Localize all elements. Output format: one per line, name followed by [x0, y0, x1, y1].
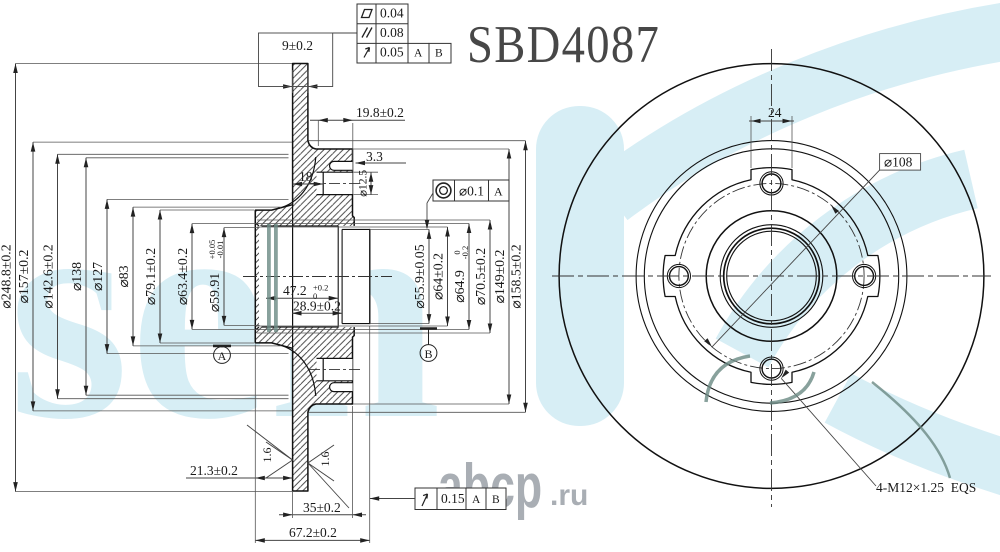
svg-text:⌀64±0.2: ⌀64±0.2: [431, 253, 446, 300]
svg-text:9±0.2: 9±0.2: [282, 38, 313, 53]
svg-text:.ru: .ru: [550, 479, 588, 512]
svg-text:⌀59.91: ⌀59.91: [207, 273, 222, 312]
svg-text:abcp: abcp: [438, 452, 542, 521]
svg-text:⌀138: ⌀138: [69, 262, 84, 291]
svg-text:-0.01: -0.01: [215, 241, 225, 259]
svg-text:⌀108: ⌀108: [884, 155, 913, 170]
svg-text:⌀158.5±0.2: ⌀158.5±0.2: [509, 244, 524, 308]
svg-text:⌀157±0.2: ⌀157±0.2: [16, 249, 31, 303]
svg-text:⌀149±0.2: ⌀149±0.2: [492, 249, 507, 303]
svg-text:67.2±0.2: 67.2±0.2: [289, 525, 337, 540]
svg-text:⌀12.5: ⌀12.5: [358, 170, 370, 197]
svg-text:0.08: 0.08: [380, 25, 404, 40]
svg-text:⌀83: ⌀83: [116, 265, 131, 287]
svg-text:24: 24: [768, 105, 782, 120]
svg-text:⌀142.6±0.2: ⌀142.6±0.2: [41, 244, 56, 308]
svg-text:⌀55.9±0.05: ⌀55.9±0.05: [412, 244, 427, 308]
svg-text:B: B: [435, 48, 443, 60]
svg-text:⌀64.9: ⌀64.9: [452, 270, 467, 303]
svg-text:18: 18: [299, 169, 313, 184]
svg-text:A: A: [494, 185, 503, 199]
svg-text:B: B: [492, 494, 500, 506]
svg-text:SBD4087: SBD4087: [467, 15, 660, 73]
svg-text:⌀248.8±0.2: ⌀248.8±0.2: [0, 244, 14, 308]
svg-text:0.05: 0.05: [380, 45, 404, 60]
svg-text:28.9±0.2: 28.9±0.2: [293, 299, 341, 314]
svg-text:A: A: [472, 494, 481, 506]
svg-text:-0.2: -0.2: [460, 246, 470, 259]
svg-text:19.8±0.2: 19.8±0.2: [356, 105, 404, 120]
svg-text:⌀70.5±0.2: ⌀70.5±0.2: [473, 248, 488, 305]
svg-text:4-M12×1.25 EQS: 4-M12×1.25 EQS: [876, 480, 976, 495]
svg-text:⌀127: ⌀127: [90, 262, 105, 291]
svg-text:⌀63.4±0.2: ⌀63.4±0.2: [175, 248, 190, 305]
svg-text:⌀79.1±0.2: ⌀79.1±0.2: [143, 248, 158, 305]
svg-text:35±0.2: 35±0.2: [303, 500, 341, 515]
svg-text:0.04: 0.04: [380, 5, 404, 20]
svg-text:21.3±0.2: 21.3±0.2: [190, 463, 238, 478]
svg-text:0.15: 0.15: [441, 491, 465, 506]
svg-text:3.3: 3.3: [366, 149, 383, 164]
svg-text:sen: sen: [8, 139, 441, 484]
svg-text:1.6: 1.6: [260, 448, 274, 463]
svg-text:47.2: 47.2: [283, 283, 307, 298]
svg-text:A: A: [218, 349, 227, 363]
svg-text:1.6: 1.6: [318, 452, 332, 467]
svg-text:⌀0.1: ⌀0.1: [459, 184, 484, 199]
svg-text:A: A: [414, 48, 423, 60]
svg-text:B: B: [424, 347, 432, 361]
